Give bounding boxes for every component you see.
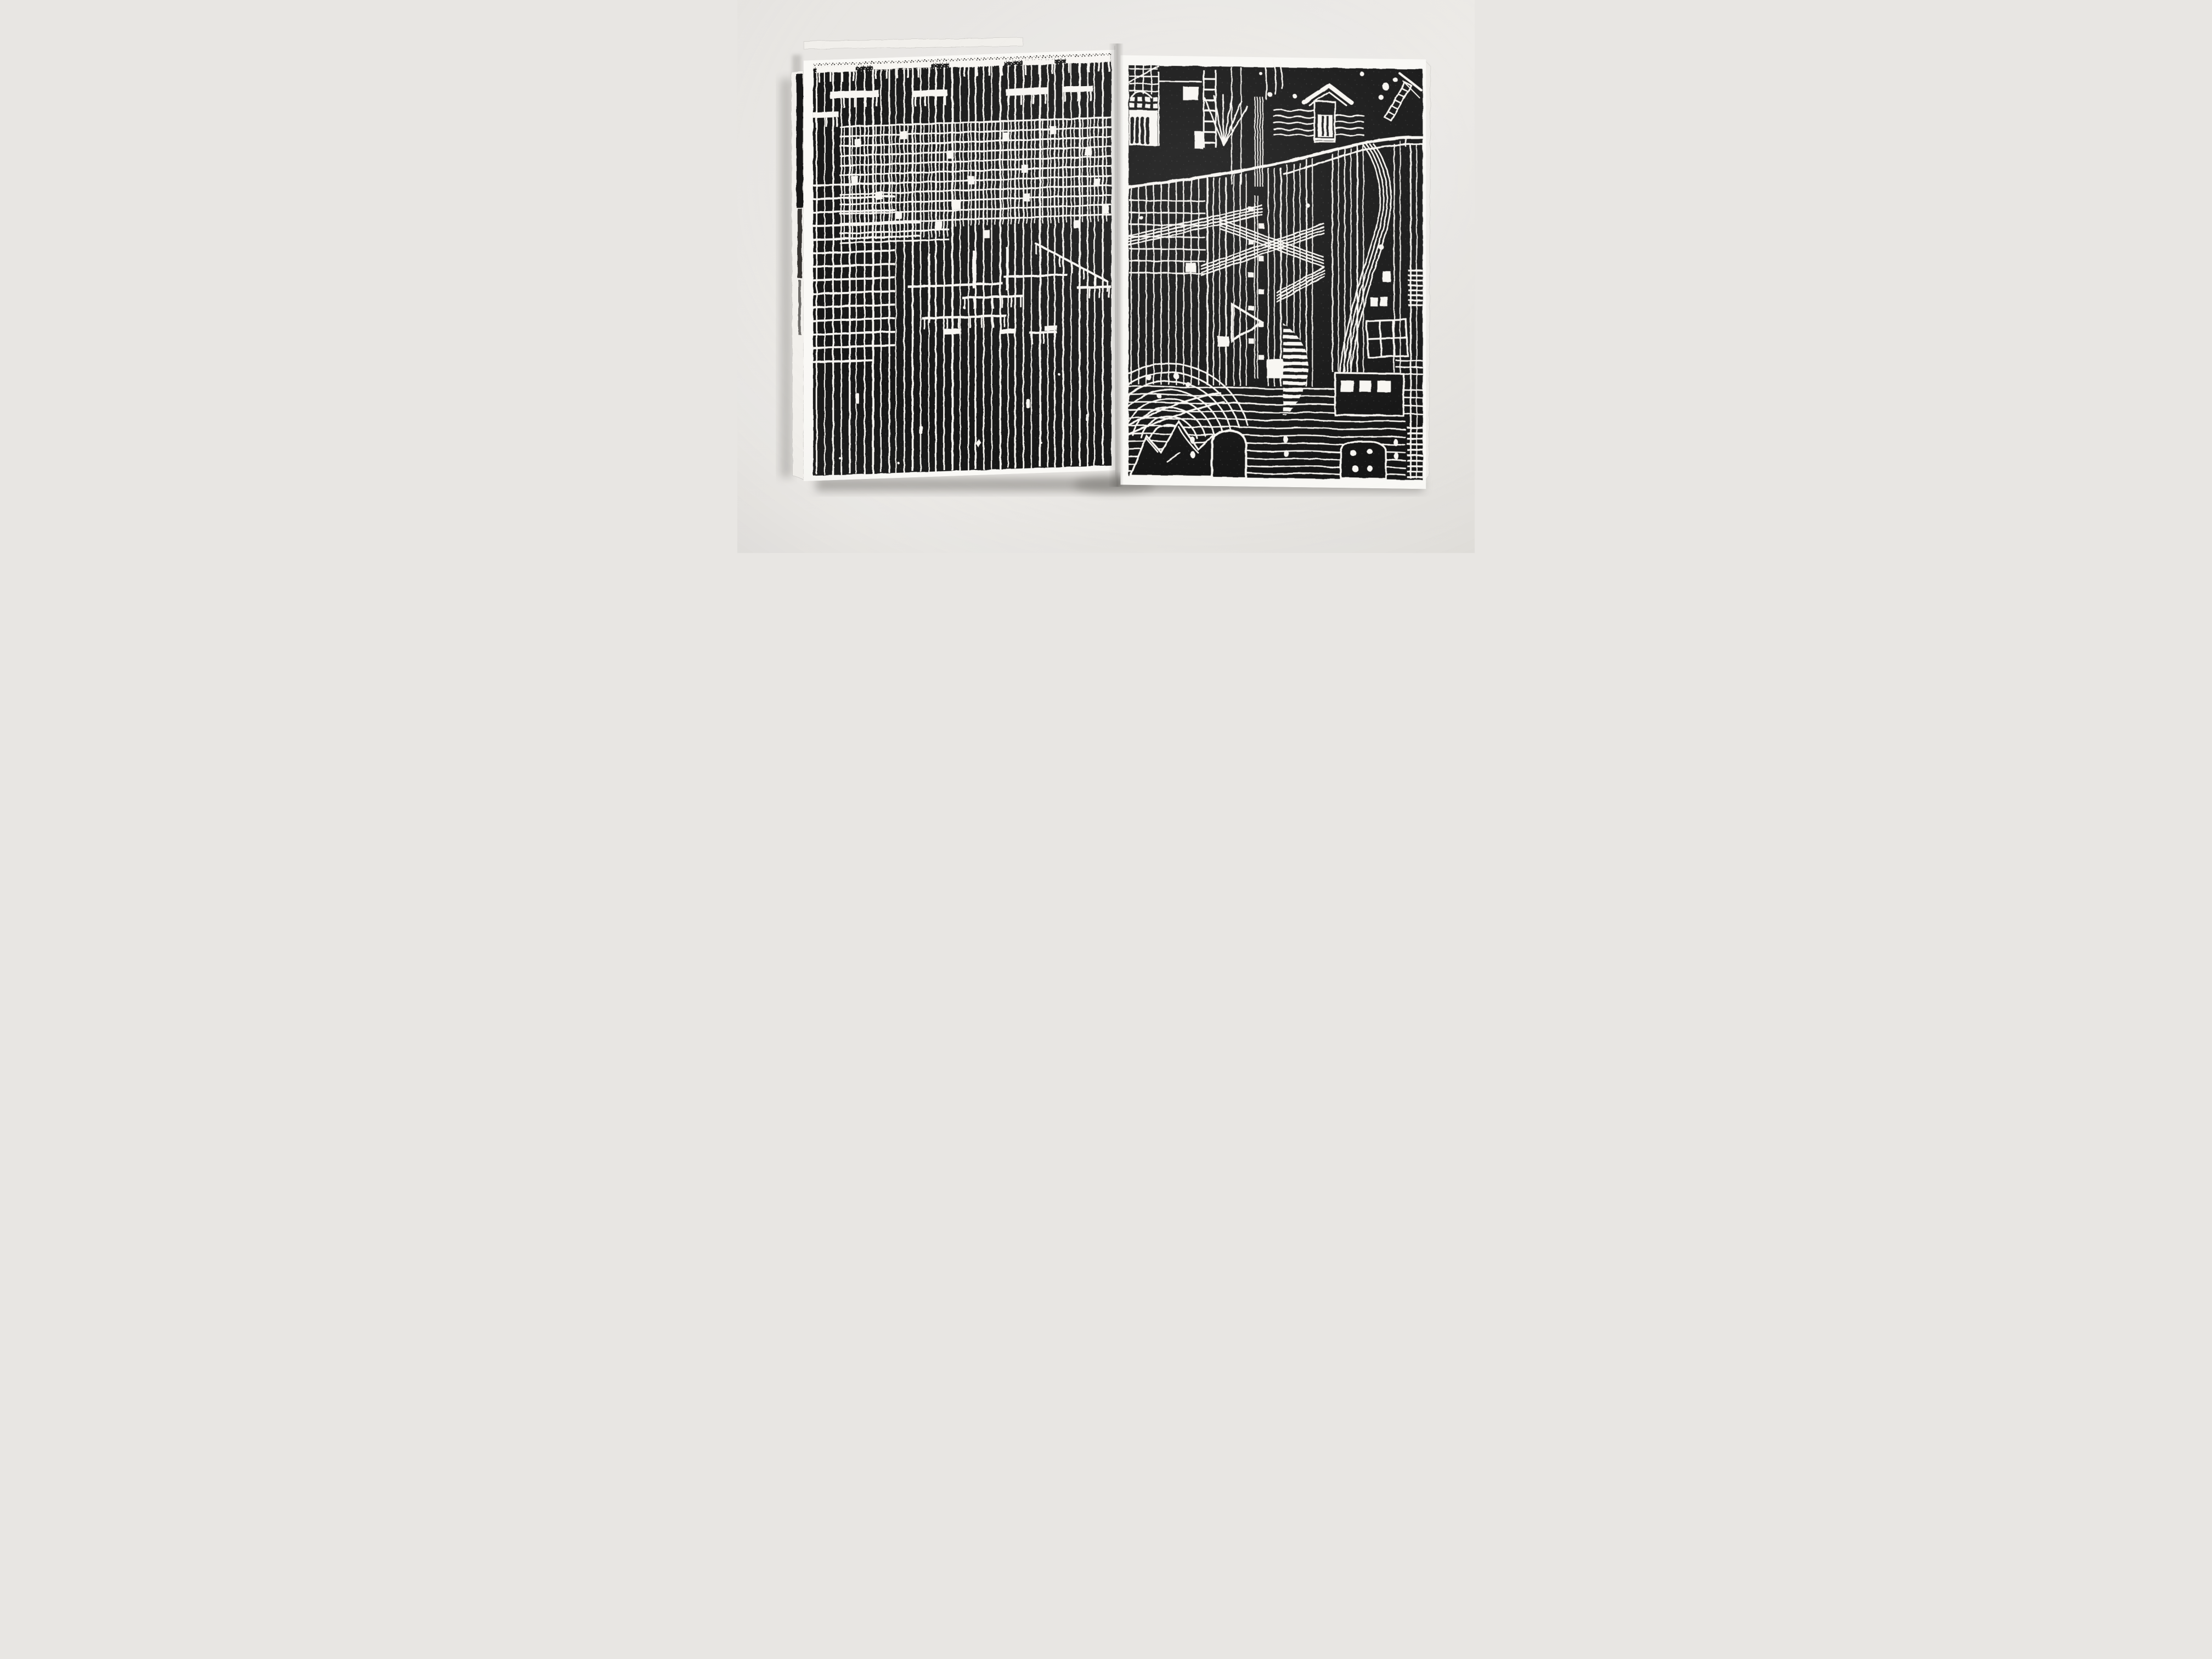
artwork-canvas <box>737 0 1475 553</box>
photo-vignette <box>737 0 1475 553</box>
photo-open-linocut-zine <box>737 0 1475 553</box>
